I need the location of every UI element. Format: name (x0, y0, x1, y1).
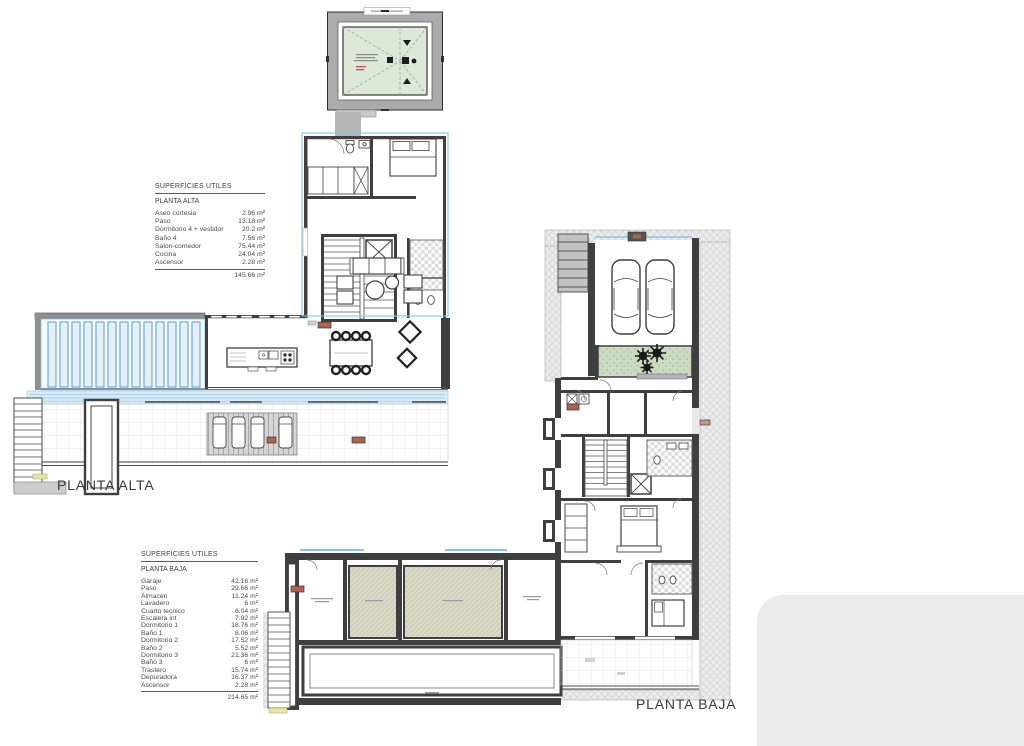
room-name: Dormitorio 2 (141, 637, 178, 644)
room-area: 16.37 m² (231, 674, 258, 681)
room-name: Dormitorio 1 (141, 622, 178, 629)
area-row: Almacen 11.24 m² (141, 593, 258, 600)
bathroom-2 (652, 564, 692, 594)
room-area: 6 m² (244, 600, 258, 607)
vent-marker (291, 586, 304, 592)
areas-table-planta-baja: SUPERFICIES UTILES PLANTA BAJA Garaje 42… (141, 551, 258, 702)
area-row: Dormitorio 1 18.76 m² (141, 622, 258, 629)
area-row: Baño 4 7.56 m² (155, 235, 265, 243)
bed-icon (652, 600, 684, 626)
room-area: 2.96 m² (242, 210, 265, 218)
bathroom-1 (647, 440, 692, 476)
area-row: Depuradora 16.37 m² (141, 674, 258, 681)
room-name: Baño 3 (141, 659, 163, 666)
room-area: 21.36 m² (231, 652, 258, 659)
table-title: SUPERFICIES UTILES (141, 551, 258, 562)
room-area: 7.56 m² (242, 235, 265, 243)
area-row: Ascensor 2.28 m² (155, 259, 265, 267)
planta-baja-drawing (255, 228, 930, 720)
room-area: 7.92 m² (235, 615, 258, 622)
area-row: Trastero 15.74 m² (141, 667, 258, 674)
room-area: 5.52 m² (235, 645, 258, 652)
area-row: Baño 2 5.52 m² (141, 645, 258, 652)
outdoor-stairs-wing (263, 612, 290, 713)
pool-basin (303, 647, 561, 695)
tree-icon (648, 344, 666, 362)
room-name: Cuarto tecnico (141, 608, 185, 615)
planta-alta-label: PLANTA ALTA (57, 477, 155, 493)
room-name: Aseo cortesia (155, 210, 196, 218)
room-area: 2.28 m² (235, 682, 258, 689)
area-total: 214.65 m² (141, 691, 258, 702)
room-name: Paso (155, 218, 171, 226)
area-total: 145.66 m² (155, 269, 265, 280)
area-row: Ascensor 2.28 m² (141, 682, 258, 689)
trastero-room (349, 566, 397, 638)
room-name: Depuradora (141, 674, 177, 681)
room-area: 29.66 m² (231, 585, 258, 592)
room-area: 6 m² (244, 659, 258, 666)
planta-baja-label: PLANTA BAJA (636, 696, 736, 712)
area-rows: Garaje 42.16 m² Paso 29.66 m² Almacen 11… (141, 578, 258, 689)
car (646, 260, 674, 334)
depuradora-room (404, 566, 502, 638)
area-row: Paso 13.18 m² (155, 218, 265, 226)
room-name: Cocina (155, 251, 176, 259)
table-subtitle: PLANTA BAJA (141, 566, 258, 574)
room-name: Paso (141, 585, 157, 592)
area-row: Salon-comedor 75.44 m² (155, 243, 265, 251)
room-name: Baño 2 (141, 645, 163, 652)
room-area: 6.04 m² (235, 608, 258, 615)
stair-marker (33, 474, 47, 479)
area-row: Paso 29.66 m² (141, 585, 258, 592)
area-row: Aseo cortesia 2.96 m² (155, 210, 265, 218)
area-row: Baño 3 6 m² (141, 659, 258, 666)
room-area: 18.76 m² (231, 622, 258, 629)
area-row: Lavadero 6 m² (141, 600, 258, 607)
room-name: Trastero (141, 667, 166, 674)
room-name: Dormitorio 4 + vestidor (155, 226, 224, 234)
area-row: Escalera int 7.92 m² (141, 615, 258, 622)
roof-connector (335, 112, 361, 140)
room-name: Baño 1 (141, 630, 163, 637)
room-area: 20.2 m² (242, 226, 265, 234)
room-name: Lavadero (141, 600, 169, 607)
tree-icon (641, 361, 654, 374)
areas-table-planta-alta: SUPERFICIES UTILES PLANTA ALTA Aseo cort… (155, 183, 265, 280)
room-area: 17.52 m² (231, 637, 258, 644)
room-area: 2.28 m² (242, 259, 265, 267)
room-area: 24.04 m² (238, 251, 265, 259)
room-area: 8.06 m² (235, 630, 258, 637)
bed-icon (617, 506, 661, 552)
room-name: Baño 4 (155, 235, 177, 243)
bed-dormitorio4 (390, 139, 436, 176)
room-name: Escalera int (141, 615, 177, 622)
room-area: 42.16 m² (231, 578, 258, 585)
room-name: Ascensor (155, 259, 183, 267)
room-name: Ascensor (141, 682, 169, 689)
room-name: Dormitorio 3 (141, 652, 178, 659)
floor-plan-sheet: SUPERFICIES UTILES PLANTA ALTA Aseo cort… (0, 0, 1024, 746)
area-row: Dormitorio 2 17.52 m² (141, 637, 258, 644)
area-row: Cocina 24.04 m² (155, 251, 265, 259)
table-title: SUPERFICIES UTILES (155, 183, 265, 194)
area-row: Dormitorio 4 + vestidor 20.2 m² (155, 226, 265, 234)
patio-garden (595, 344, 692, 379)
area-row: Baño 1 8.06 m² (141, 630, 258, 637)
table-subtitle: PLANTA ALTA (155, 198, 265, 206)
room-name: Almacen (141, 593, 167, 600)
area-row: Dormitorio 3 21.36 m² (141, 652, 258, 659)
room-area: 13.18 m² (238, 218, 265, 226)
room-area: 11.24 m² (232, 593, 258, 600)
roof-plan (326, 8, 444, 118)
area-rows: Aseo cortesia 2.96 m² Paso 13.18 m² Dorm… (155, 210, 265, 267)
area-row: Garaje 42.16 m² (141, 578, 258, 585)
tree-icon (635, 348, 651, 364)
pergola (35, 313, 205, 390)
area-row: Cuarto tecnico 6.04 m² (141, 608, 258, 615)
room-area: 75.44 m² (238, 243, 265, 251)
car (612, 260, 640, 334)
room-name: Garaje (141, 578, 161, 585)
room-name: Salon-comedor (155, 243, 201, 251)
lower-terrace-baja (561, 640, 699, 689)
room-area: 15.74 m² (231, 667, 258, 674)
roof-plan-drawing (326, 6, 448, 118)
